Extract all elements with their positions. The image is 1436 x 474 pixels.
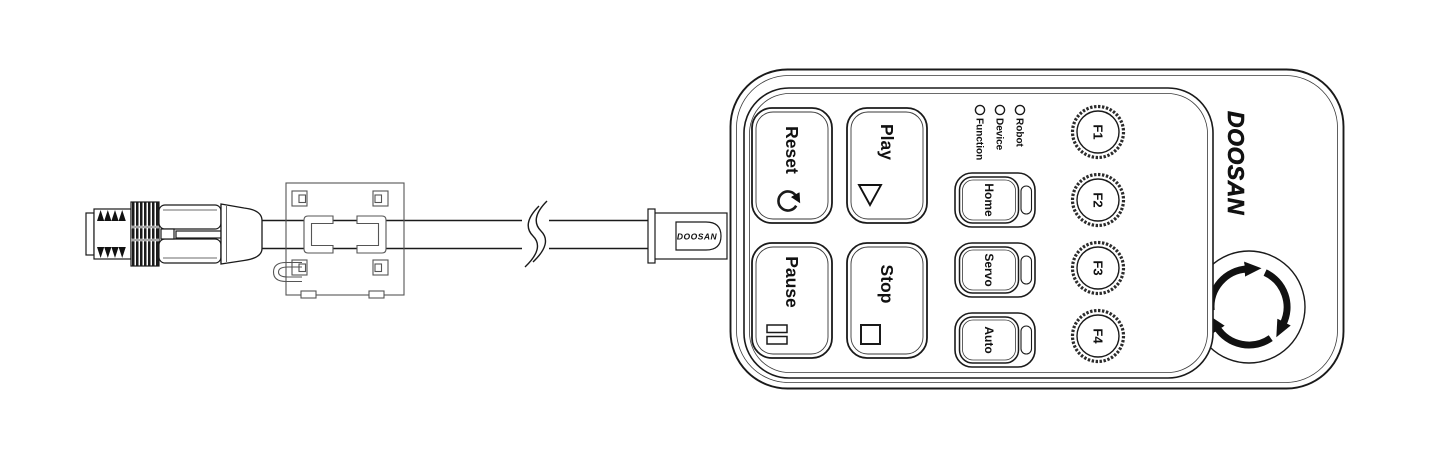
- reset-label: Reset: [782, 126, 802, 174]
- function-led-label: Function: [974, 118, 985, 160]
- cable-connector: [86, 202, 262, 266]
- servo-label: Servo: [982, 253, 996, 286]
- function-button-f3: F3: [1073, 243, 1124, 294]
- stop-label: Stop: [877, 265, 897, 304]
- auto-label: Auto: [982, 326, 996, 353]
- teach-pendant: DOOSAN F1 F2 F3: [731, 70, 1344, 389]
- play-label: Play: [877, 124, 897, 160]
- mode-button-auto: Auto: [955, 313, 1035, 367]
- doosan-logo: DOOSAN: [1223, 111, 1249, 215]
- function-button-f1: F1: [1073, 107, 1124, 158]
- f2-label: F2: [1090, 192, 1105, 207]
- mode-button-servo: Servo: [955, 243, 1035, 297]
- f4-label: F4: [1090, 328, 1105, 344]
- connector-boot: [221, 204, 262, 264]
- f1-label: F1: [1090, 124, 1105, 139]
- function-button-f4: F4: [1073, 311, 1124, 362]
- connector-knurled-ring: [131, 202, 159, 266]
- function-button-f2: F2: [1073, 175, 1124, 226]
- home-label: Home: [982, 183, 996, 217]
- pause-button: Pause: [752, 243, 832, 358]
- device-led-label: Device: [994, 118, 1005, 151]
- robot-led-label: Robot: [1014, 118, 1025, 148]
- connector-body: [159, 205, 222, 263]
- doosan-pendant-diagram: DOOSAN DOOSAN F1 F2: [0, 0, 1436, 474]
- f3-label: F3: [1090, 260, 1105, 275]
- cable-break-symbol: [522, 201, 549, 267]
- cable-strain-relief: DOOSAN: [648, 209, 727, 263]
- reset-button: Reset: [752, 108, 832, 223]
- play-button: Play: [847, 108, 927, 223]
- mode-button-home: Home: [955, 173, 1035, 227]
- pause-label: Pause: [782, 256, 802, 308]
- cable-doosan-label: DOOSAN: [677, 232, 718, 242]
- stop-button: Stop: [847, 243, 927, 358]
